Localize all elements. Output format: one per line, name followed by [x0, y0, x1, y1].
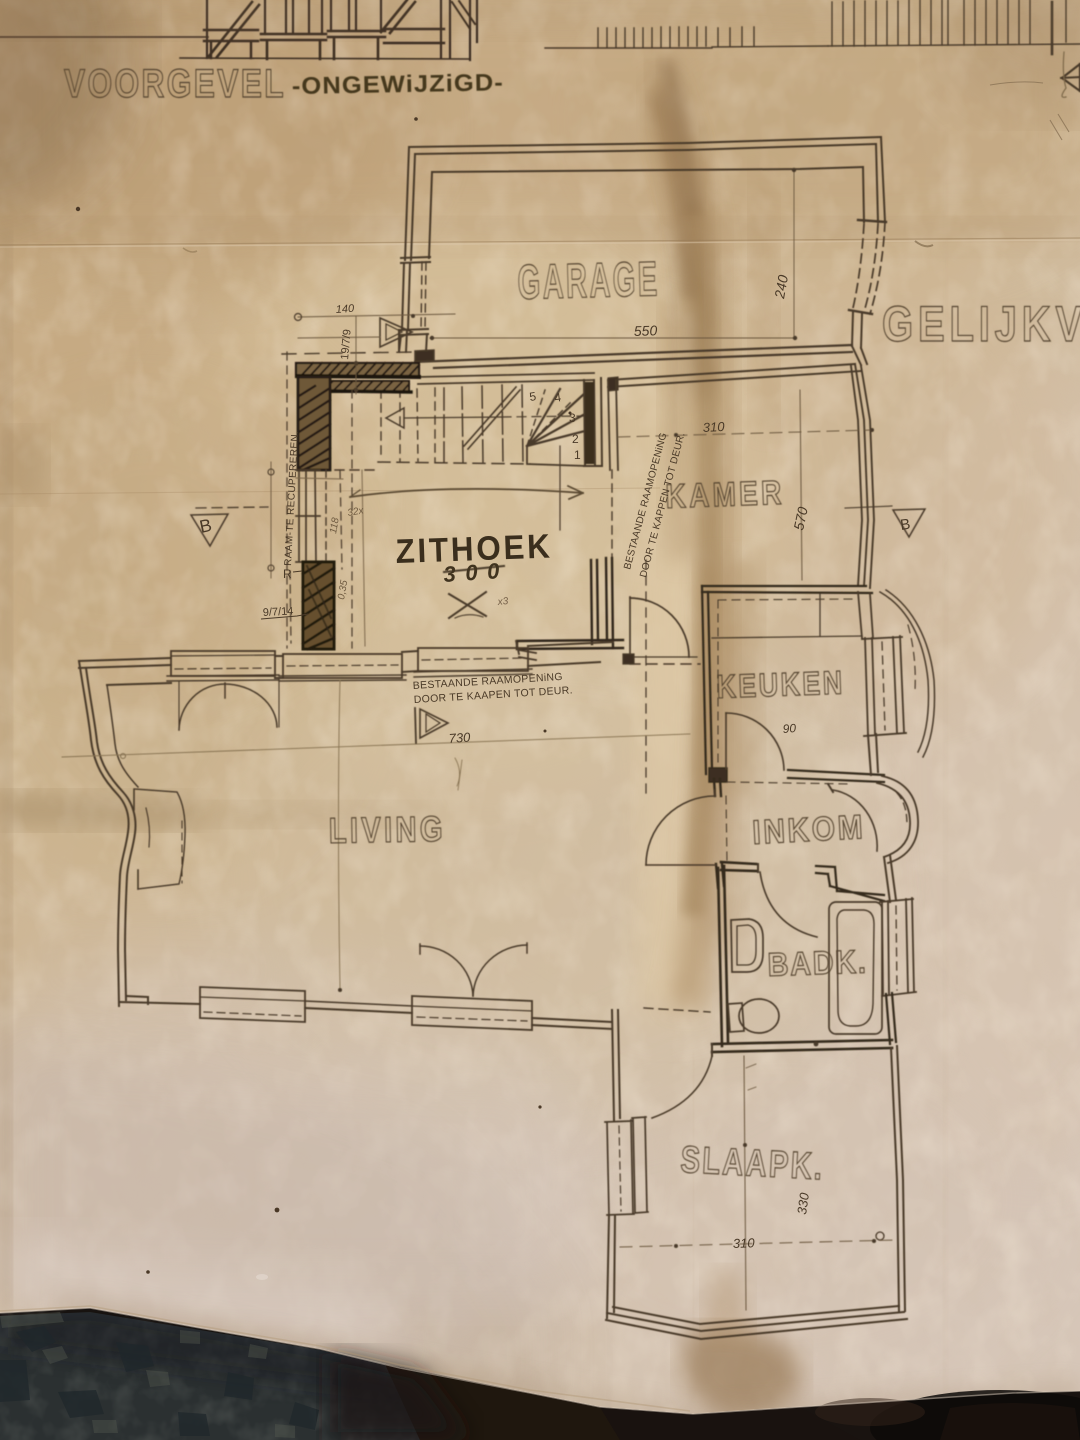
svg-text:x3: x3 — [496, 596, 509, 608]
svg-text:KAMER: KAMER — [665, 474, 785, 516]
svg-text:90: 90 — [782, 721, 797, 736]
svg-text:730: 730 — [448, 729, 471, 746]
svg-text:KEUKEN: KEUKEN — [716, 664, 845, 705]
svg-text:LIVING: LIVING — [328, 808, 446, 851]
svg-text:140: 140 — [335, 303, 355, 316]
svg-text:310: 310 — [733, 1235, 756, 1251]
svg-text:GARAGE: GARAGE — [517, 252, 660, 310]
svg-text:300: 300 — [443, 558, 501, 587]
svg-text:GELIJKV: GELIJKV — [882, 296, 1080, 352]
svg-text:INKOM: INKOM — [751, 808, 866, 852]
svg-text:330: 330 — [794, 1191, 812, 1215]
svg-text:SLAAPK.: SLAAPK. — [680, 1139, 826, 1188]
svg-text:R: R — [283, 567, 292, 581]
svg-text:BADK.: BADK. — [767, 943, 868, 983]
svg-text:310: 310 — [702, 419, 725, 435]
svg-text:-ONGEWiJZiGD-: -ONGEWiJZiGD- — [292, 69, 504, 100]
svg-text:1: 1 — [574, 448, 581, 462]
svg-text:550: 550 — [634, 322, 658, 339]
svg-text:2: 2 — [572, 432, 579, 446]
